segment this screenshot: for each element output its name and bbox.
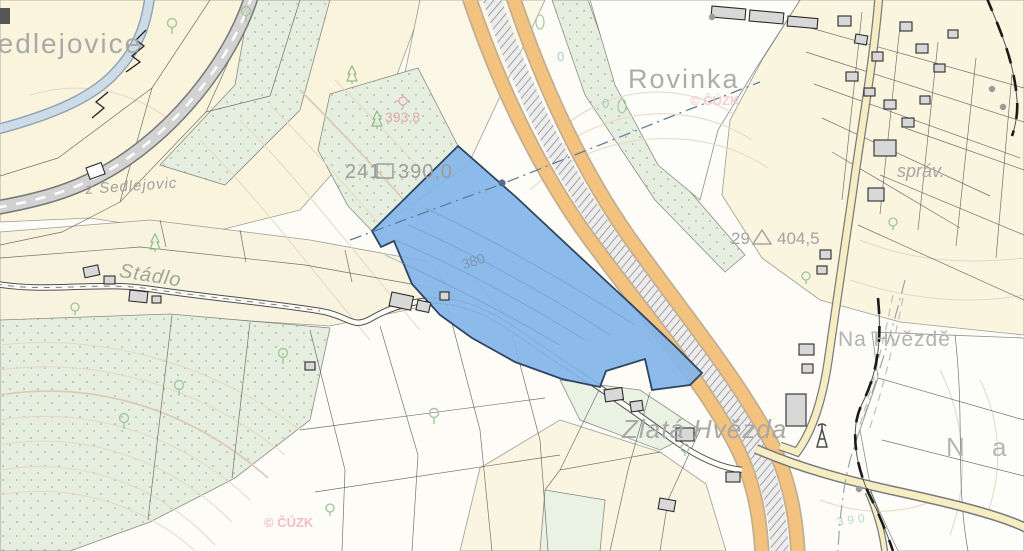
utility-dot-symbol <box>498 179 505 186</box>
survey-dot-symbol <box>989 86 995 92</box>
survey-dot-symbol <box>709 14 715 20</box>
map-canvas[interactable]: Sedlejovicez SedlejovicStádloRovinka2413… <box>0 0 1024 551</box>
survey-dot-symbol <box>1000 104 1006 110</box>
map-terrain <box>0 0 1024 551</box>
survey-dot-symbol <box>856 486 862 492</box>
